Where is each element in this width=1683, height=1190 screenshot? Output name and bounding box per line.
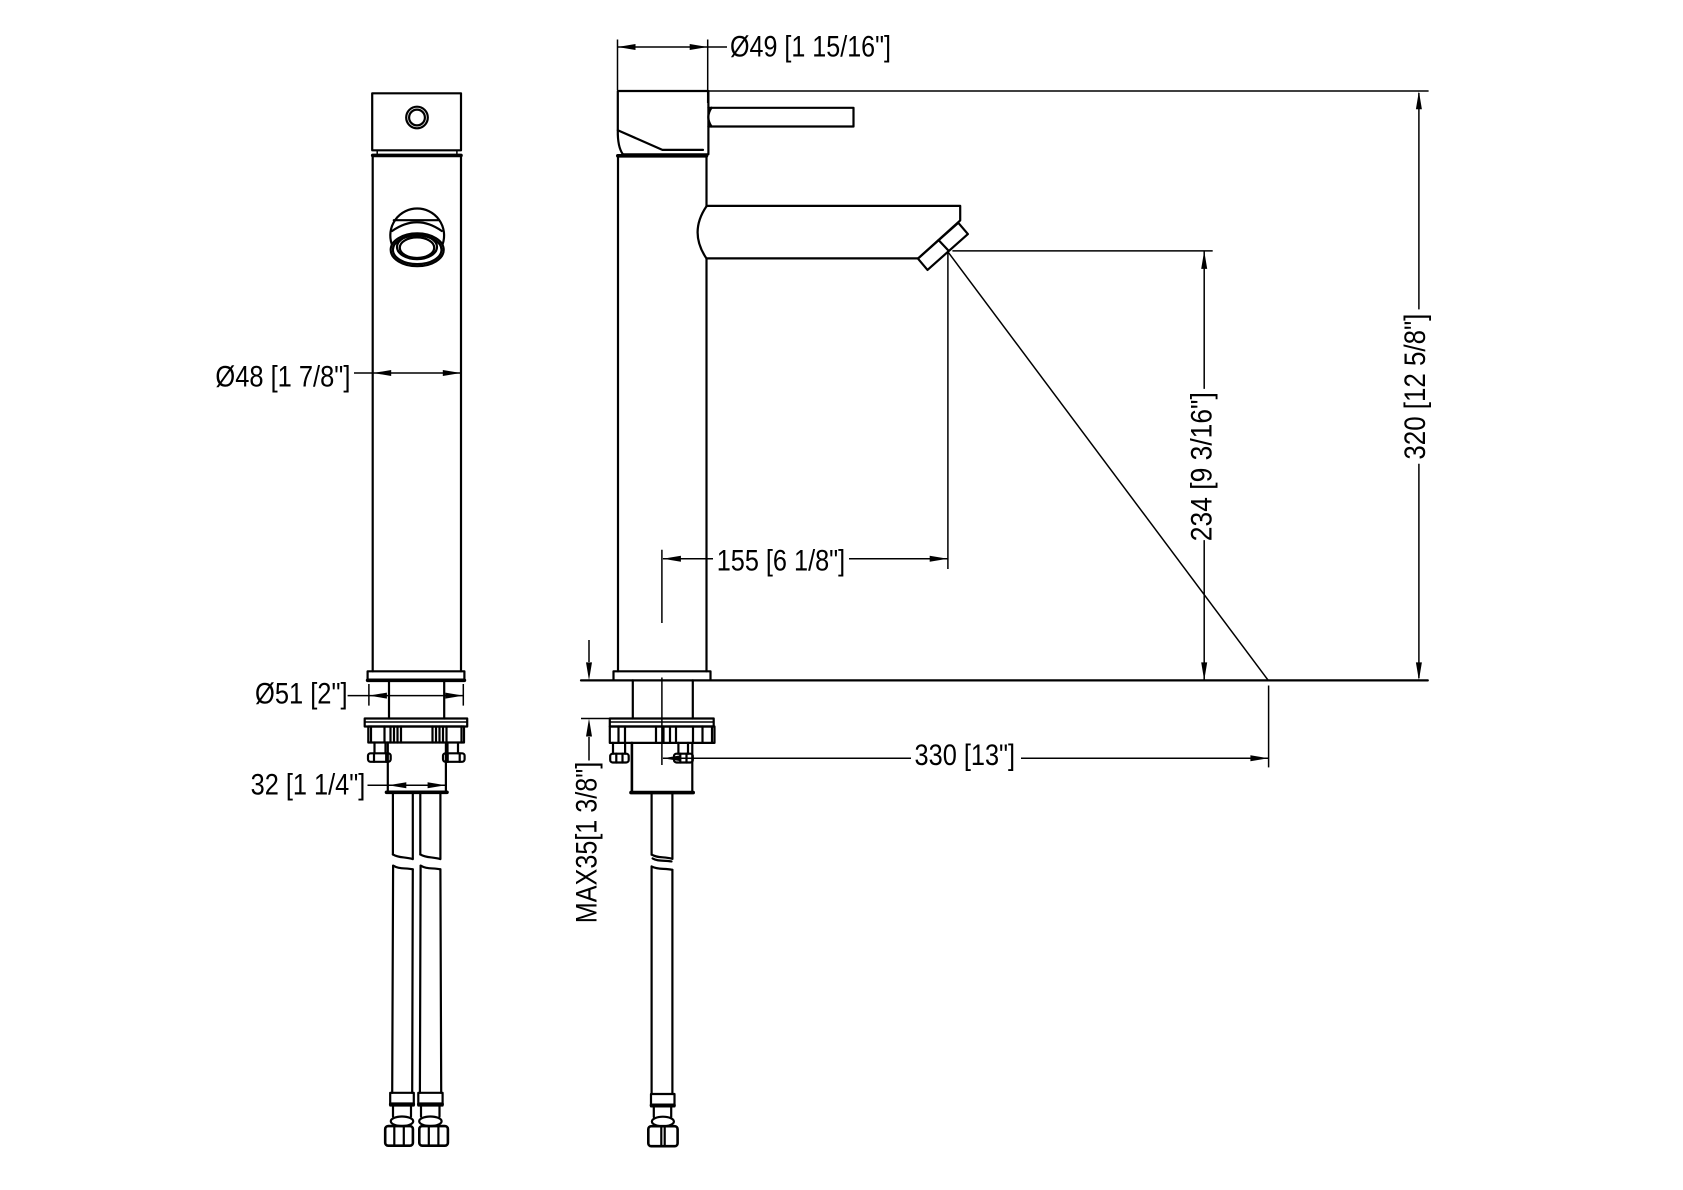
svg-text:Ø48 [1 7/8"]: Ø48 [1 7/8"] xyxy=(215,360,350,393)
svg-text:155 [6 1/8"]: 155 [6 1/8"] xyxy=(717,544,846,577)
svg-text:Ø49 [1 15/16"]: Ø49 [1 15/16"] xyxy=(730,31,891,64)
svg-text:MAX35[1 3/8"]: MAX35[1 3/8"] xyxy=(570,762,603,923)
svg-text:330 [13"]: 330 [13"] xyxy=(915,739,1016,772)
svg-text:32 [1 1/4"]: 32 [1 1/4"] xyxy=(251,768,366,801)
svg-text:Ø51 [2"]: Ø51 [2"] xyxy=(255,678,348,711)
svg-text:234 [9 3/16"]: 234 [9 3/16"] xyxy=(1185,392,1218,541)
svg-text:320 [12 5/8"]: 320 [12 5/8"] xyxy=(1399,314,1432,460)
